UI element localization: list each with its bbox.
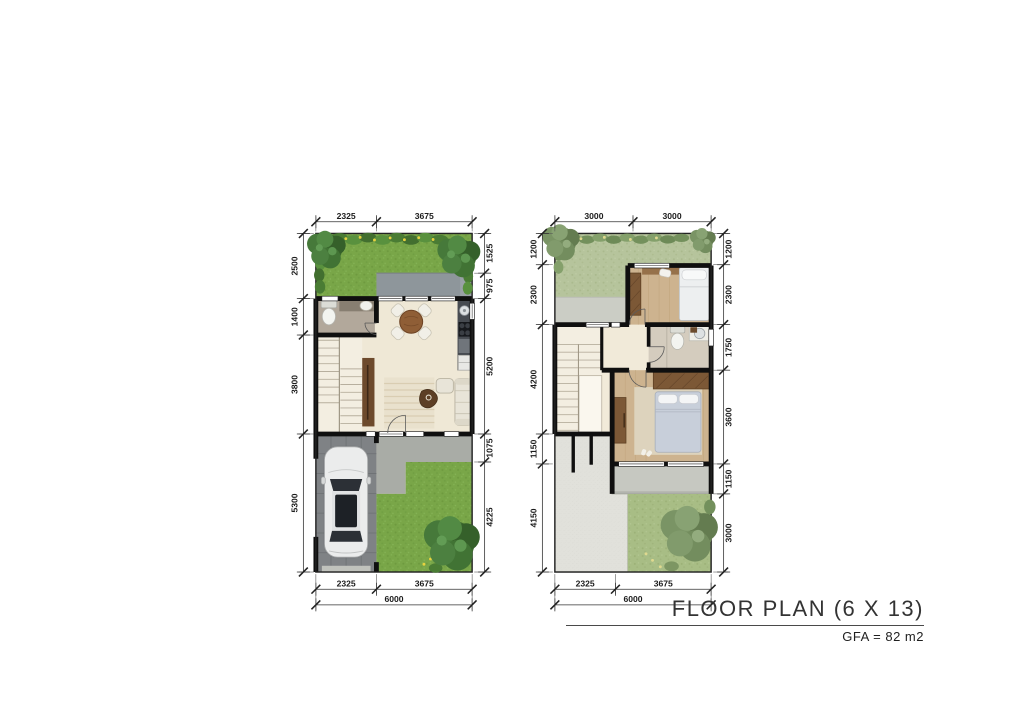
car [321,446,370,559]
drawing-title: FLOOR PLAN (6 X 13) [544,596,924,622]
dim-label: 1075 [485,438,495,457]
toilet [671,333,684,349]
dim-label: 1150 [724,469,734,488]
dim-label: 975 [485,278,495,293]
sunroof [335,495,357,528]
dim-label: 2325 [337,578,356,588]
windshield [330,479,362,491]
driveway-gate [322,566,371,572]
first-floor-plan: 2325 3675 2325 3675 6000 2500 1400 3800 … [282,197,506,614]
dim-label: 1400 [290,307,300,326]
dim-label: 2300 [724,285,734,304]
wardrobe [653,372,709,389]
dim-label: 1200 [724,239,734,258]
title-block: FLOOR PLAN (6 X 13) GFA = 82 m2 [544,596,924,644]
dim-label: 3000 [584,211,603,221]
living-room [384,377,472,428]
toilet [322,308,335,325]
dim-label: 3675 [654,578,673,588]
dim-label: 4225 [485,507,495,526]
dim-label: 5200 [485,357,495,376]
dim-label: 2300 [529,285,539,304]
dim-label: 4150 [529,508,539,527]
dim-label: 1525 [485,243,495,262]
floor-plan-sheet: 2325 3675 2325 3675 6000 2500 1400 3800 … [0,0,1024,723]
second-floor-plan: 3000 3000 2325 3675 6000 1200 2300 4200 … [521,197,745,614]
balcony [612,464,711,494]
dim-label: 3600 [724,407,734,426]
title-underline [566,625,924,626]
stair-void [579,376,602,434]
dim-label: 5300 [290,493,300,512]
dim-label: 3675 [415,211,434,221]
dim-label: 3000 [663,211,682,221]
dim-label: 3000 [724,523,734,542]
dining-table [400,310,423,333]
dim-label: 3800 [290,375,300,394]
dim-label: 3675 [415,578,434,588]
dim-label: 2500 [290,256,300,275]
ledge [555,297,628,324]
dim-label: 1200 [529,239,539,258]
gfa-label: GFA = 82 m2 [544,629,924,644]
armchair [436,379,453,394]
dim-label: 2325 [337,211,356,221]
sink [360,301,372,311]
dim-label: 4200 [529,370,539,389]
dim-label: 1150 [529,439,539,458]
second-floor-stairs [556,325,601,434]
sofa [455,379,472,426]
dim-label: 6000 [384,594,403,604]
dim-label: 2325 [576,578,595,588]
dim-label: 1750 [724,338,734,357]
porch [376,273,472,298]
